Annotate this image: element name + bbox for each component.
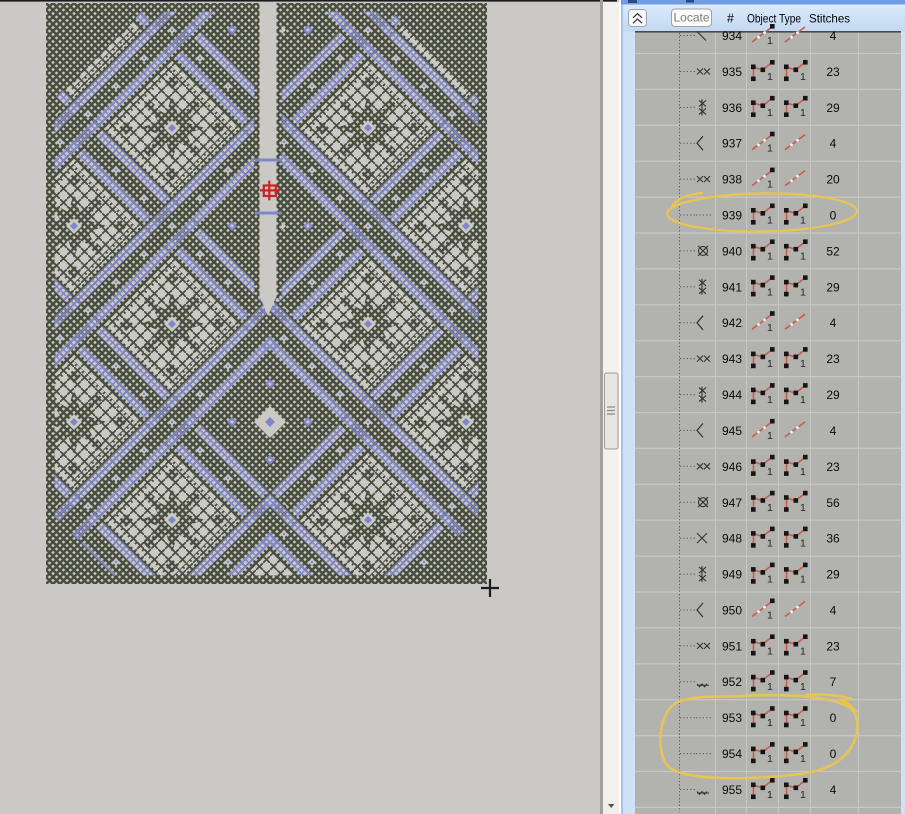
svg-text:29: 29: [826, 388, 840, 402]
svg-text:4: 4: [830, 783, 837, 797]
svg-text:947: 947: [722, 496, 742, 510]
svg-text:1: 1: [767, 215, 773, 227]
svg-text:23: 23: [826, 460, 840, 474]
svg-text:1: 1: [767, 71, 773, 83]
svg-text:950: 950: [722, 604, 742, 618]
svg-text:938: 938: [722, 173, 742, 187]
svg-text:1: 1: [767, 143, 773, 155]
svg-text:1: 1: [800, 394, 806, 406]
svg-text:7: 7: [830, 675, 837, 689]
svg-text:939: 939: [722, 209, 742, 223]
svg-text:1: 1: [800, 789, 806, 801]
svg-text:29: 29: [826, 568, 840, 582]
svg-text:1: 1: [767, 645, 773, 657]
svg-text:1: 1: [767, 394, 773, 406]
svg-text:1: 1: [767, 753, 773, 765]
svg-text:937: 937: [722, 137, 742, 151]
svg-text:36: 36: [826, 532, 840, 546]
svg-text:Stitches: Stitches: [809, 12, 850, 26]
svg-text:1: 1: [800, 538, 806, 550]
svg-text:1: 1: [800, 71, 806, 83]
svg-text:1: 1: [767, 107, 773, 119]
svg-text:941: 941: [722, 280, 742, 294]
svg-text:1: 1: [767, 466, 773, 478]
svg-text:1: 1: [767, 789, 773, 801]
svg-text:0: 0: [830, 711, 837, 725]
svg-text:1: 1: [767, 358, 773, 370]
svg-text:1: 1: [800, 753, 806, 765]
svg-text:23: 23: [826, 65, 840, 79]
svg-text:949: 949: [722, 568, 742, 582]
svg-text:1: 1: [767, 610, 773, 622]
svg-text:936: 936: [722, 101, 742, 115]
svg-text:1: 1: [767, 250, 773, 262]
svg-text:20: 20: [826, 173, 840, 187]
svg-text:1: 1: [767, 538, 773, 550]
svg-text:1: 1: [800, 574, 806, 586]
svg-text:1: 1: [800, 286, 806, 298]
svg-text:951: 951: [722, 639, 742, 653]
svg-text:1: 1: [800, 107, 806, 119]
svg-text:#: #: [727, 12, 734, 26]
svg-text:23: 23: [826, 352, 840, 366]
svg-text:Object Type: Object Type: [747, 12, 801, 26]
svg-text:29: 29: [826, 101, 840, 115]
svg-text:943: 943: [722, 352, 742, 366]
svg-text:946: 946: [722, 460, 742, 474]
svg-text:1: 1: [767, 574, 773, 586]
svg-text:1: 1: [767, 681, 773, 693]
svg-text:Locate: Locate: [673, 11, 709, 25]
svg-text:1: 1: [800, 466, 806, 478]
svg-text:934: 934: [722, 29, 742, 43]
svg-text:4: 4: [830, 29, 837, 43]
svg-text:935: 935: [722, 65, 742, 79]
svg-text:1: 1: [800, 502, 806, 514]
svg-text:4: 4: [830, 424, 837, 438]
svg-text:4: 4: [830, 604, 837, 618]
svg-text:1: 1: [800, 215, 806, 227]
svg-text:948: 948: [722, 532, 742, 546]
svg-text:1: 1: [767, 322, 773, 334]
svg-text:4: 4: [830, 316, 837, 330]
svg-text:953: 953: [722, 711, 742, 725]
svg-text:1: 1: [800, 645, 806, 657]
svg-text:0: 0: [830, 209, 837, 223]
svg-text:1: 1: [767, 430, 773, 442]
svg-text:1: 1: [800, 250, 806, 262]
svg-text:4: 4: [830, 137, 837, 151]
svg-text:944: 944: [722, 388, 742, 402]
svg-text:1: 1: [767, 179, 773, 191]
svg-text:940: 940: [722, 244, 742, 258]
svg-text:1: 1: [800, 681, 806, 693]
svg-text:945: 945: [722, 424, 742, 438]
svg-text:52: 52: [826, 244, 840, 258]
svg-text:1: 1: [767, 286, 773, 298]
svg-text:955: 955: [722, 783, 742, 797]
svg-text:23: 23: [826, 639, 840, 653]
svg-text:1: 1: [800, 717, 806, 729]
svg-text:0: 0: [830, 747, 837, 761]
svg-text:1: 1: [767, 717, 773, 729]
svg-text:1: 1: [800, 358, 806, 370]
svg-text:942: 942: [722, 316, 742, 330]
svg-text:29: 29: [826, 280, 840, 294]
svg-text:952: 952: [722, 675, 742, 689]
svg-text:1: 1: [767, 35, 773, 47]
svg-text:954: 954: [722, 747, 742, 761]
svg-text:56: 56: [826, 496, 840, 510]
svg-text:1: 1: [767, 502, 773, 514]
